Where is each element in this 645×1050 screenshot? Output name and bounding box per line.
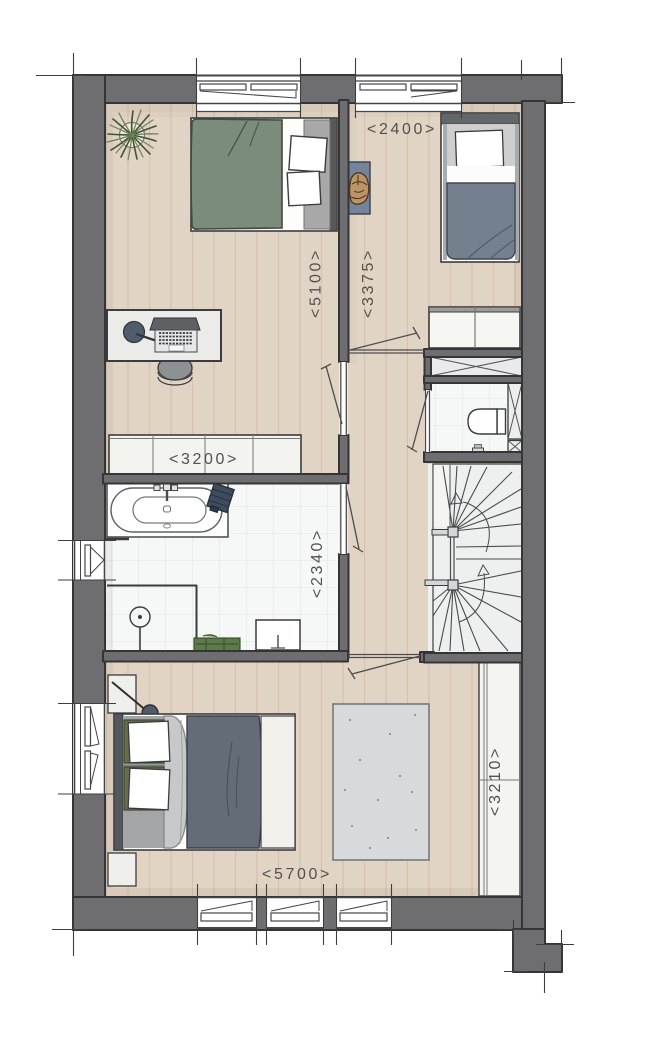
svg-text:<2340>: <2340>: [309, 528, 326, 598]
svg-text:<3210>: <3210>: [487, 746, 504, 816]
svg-text:<2400>: <2400>: [367, 121, 437, 138]
svg-text:<5700>: <5700>: [262, 866, 332, 883]
svg-text:<3375>: <3375>: [360, 248, 377, 318]
svg-text:<3200>: <3200>: [169, 451, 239, 468]
svg-text:<5100>: <5100>: [308, 248, 325, 318]
